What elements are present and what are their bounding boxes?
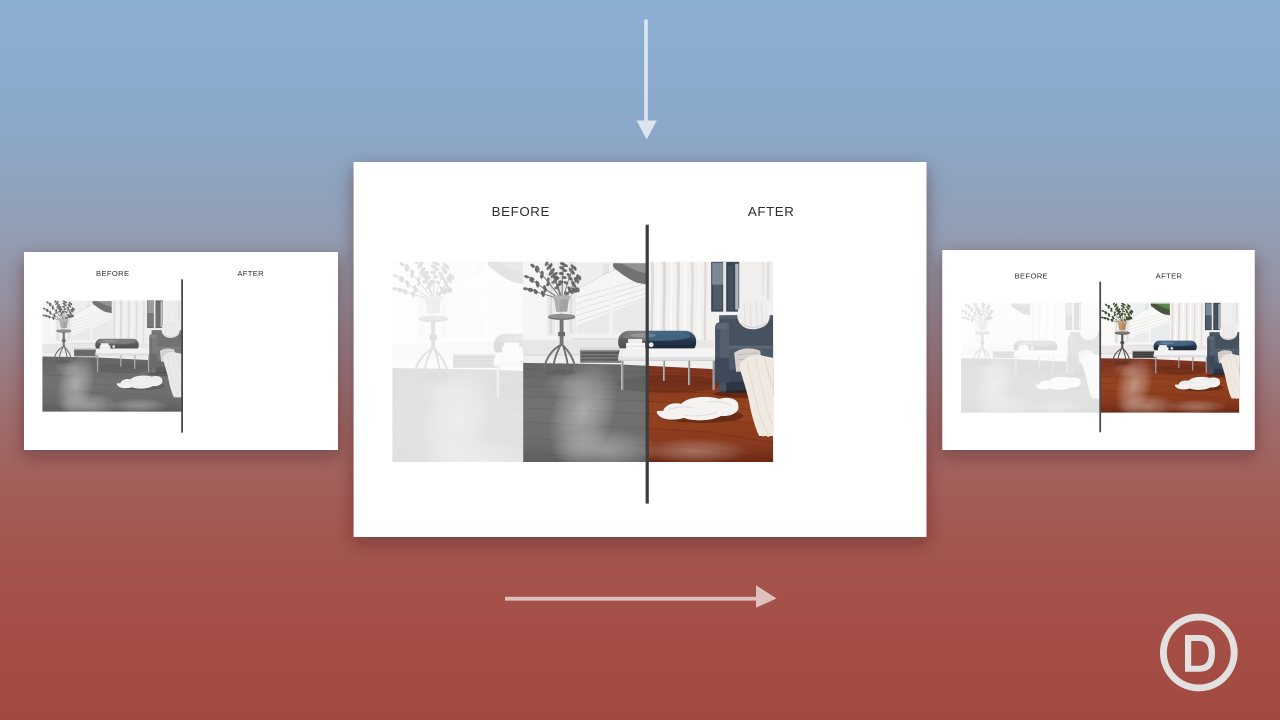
- svg-text:BEFORE: BEFORE: [492, 204, 550, 219]
- svg-text:AFTER: AFTER: [237, 269, 264, 278]
- svg-text:BEFORE: BEFORE: [96, 269, 129, 278]
- svg-text:BEFORE: BEFORE: [1015, 271, 1048, 280]
- svg-text:AFTER: AFTER: [748, 204, 795, 219]
- svg-text:AFTER: AFTER: [1156, 271, 1183, 280]
